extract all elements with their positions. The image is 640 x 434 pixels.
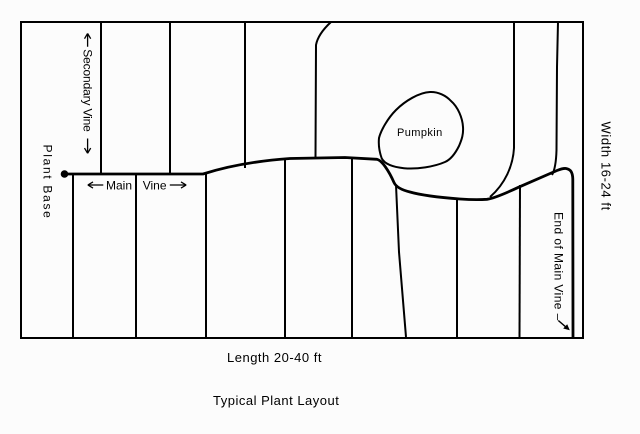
svg-text:End of Main Vine –: End of Main Vine – xyxy=(552,212,566,321)
svg-text:Secondary Vine: Secondary Vine xyxy=(81,49,95,132)
svg-text:Main: Main xyxy=(106,179,132,193)
svg-text:Typical Plant Layout: Typical Plant Layout xyxy=(213,393,339,408)
svg-text:Width 16-24 ft: Width 16-24 ft xyxy=(599,122,614,211)
svg-text:Pumpkin: Pumpkin xyxy=(397,127,443,139)
svg-text:Vine: Vine xyxy=(143,179,167,193)
svg-text:Length 20-40 ft: Length 20-40 ft xyxy=(227,350,322,365)
svg-text:Plant Base: Plant Base xyxy=(41,145,55,220)
